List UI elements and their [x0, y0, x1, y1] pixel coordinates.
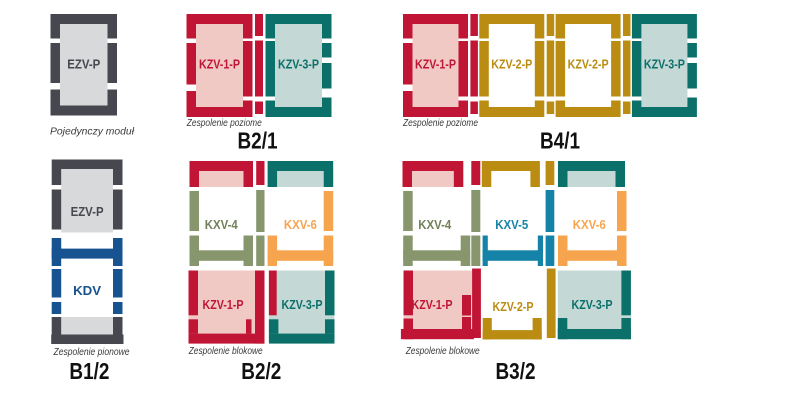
svg-text:KZV-2-P: KZV-2-P [568, 57, 609, 72]
svg-text:Zespolenie poziome: Zespolenie poziome [402, 117, 478, 129]
svg-text:KZV-1-P: KZV-1-P [199, 57, 240, 72]
svg-text:KZV-3-P: KZV-3-P [644, 57, 685, 72]
svg-text:KXV-6: KXV-6 [573, 217, 606, 232]
svg-text:B1/2: B1/2 [69, 358, 109, 384]
svg-text:KZV-3-P: KZV-3-P [278, 57, 319, 72]
svg-text:B2/1: B2/1 [238, 128, 278, 154]
svg-text:KZV-3-P: KZV-3-P [572, 297, 613, 312]
svg-text:KXV-4: KXV-4 [418, 217, 452, 232]
svg-text:KZV-2-P: KZV-2-P [491, 57, 532, 72]
svg-text:Zespolenie blokowe: Zespolenie blokowe [405, 345, 480, 357]
svg-text:Pojedynczy moduł: Pojedynczy moduł [50, 126, 135, 138]
svg-text:KDV: KDV [73, 283, 101, 298]
svg-text:Zespolenie blokowe: Zespolenie blokowe [188, 345, 263, 357]
svg-text:KZV-2-P: KZV-2-P [493, 299, 534, 314]
svg-text:B4/1: B4/1 [540, 128, 580, 154]
svg-text:EZV-P: EZV-P [71, 204, 104, 219]
svg-text:KXV-4: KXV-4 [205, 217, 239, 232]
svg-text:KZV-1-P: KZV-1-P [203, 297, 244, 312]
svg-text:KZV-1-P: KZV-1-P [415, 57, 456, 72]
svg-text:B2/2: B2/2 [241, 358, 281, 384]
svg-text:KZV-1-P: KZV-1-P [412, 297, 453, 312]
svg-text:EZV-P: EZV-P [67, 57, 100, 72]
svg-text:KXV-5: KXV-5 [495, 217, 528, 232]
svg-text:B3/2: B3/2 [496, 358, 536, 384]
svg-text:KXV-6: KXV-6 [284, 217, 317, 232]
svg-text:KZV-3-P: KZV-3-P [282, 297, 323, 312]
svg-text:Zespolenie pionowe: Zespolenie pionowe [53, 346, 130, 358]
